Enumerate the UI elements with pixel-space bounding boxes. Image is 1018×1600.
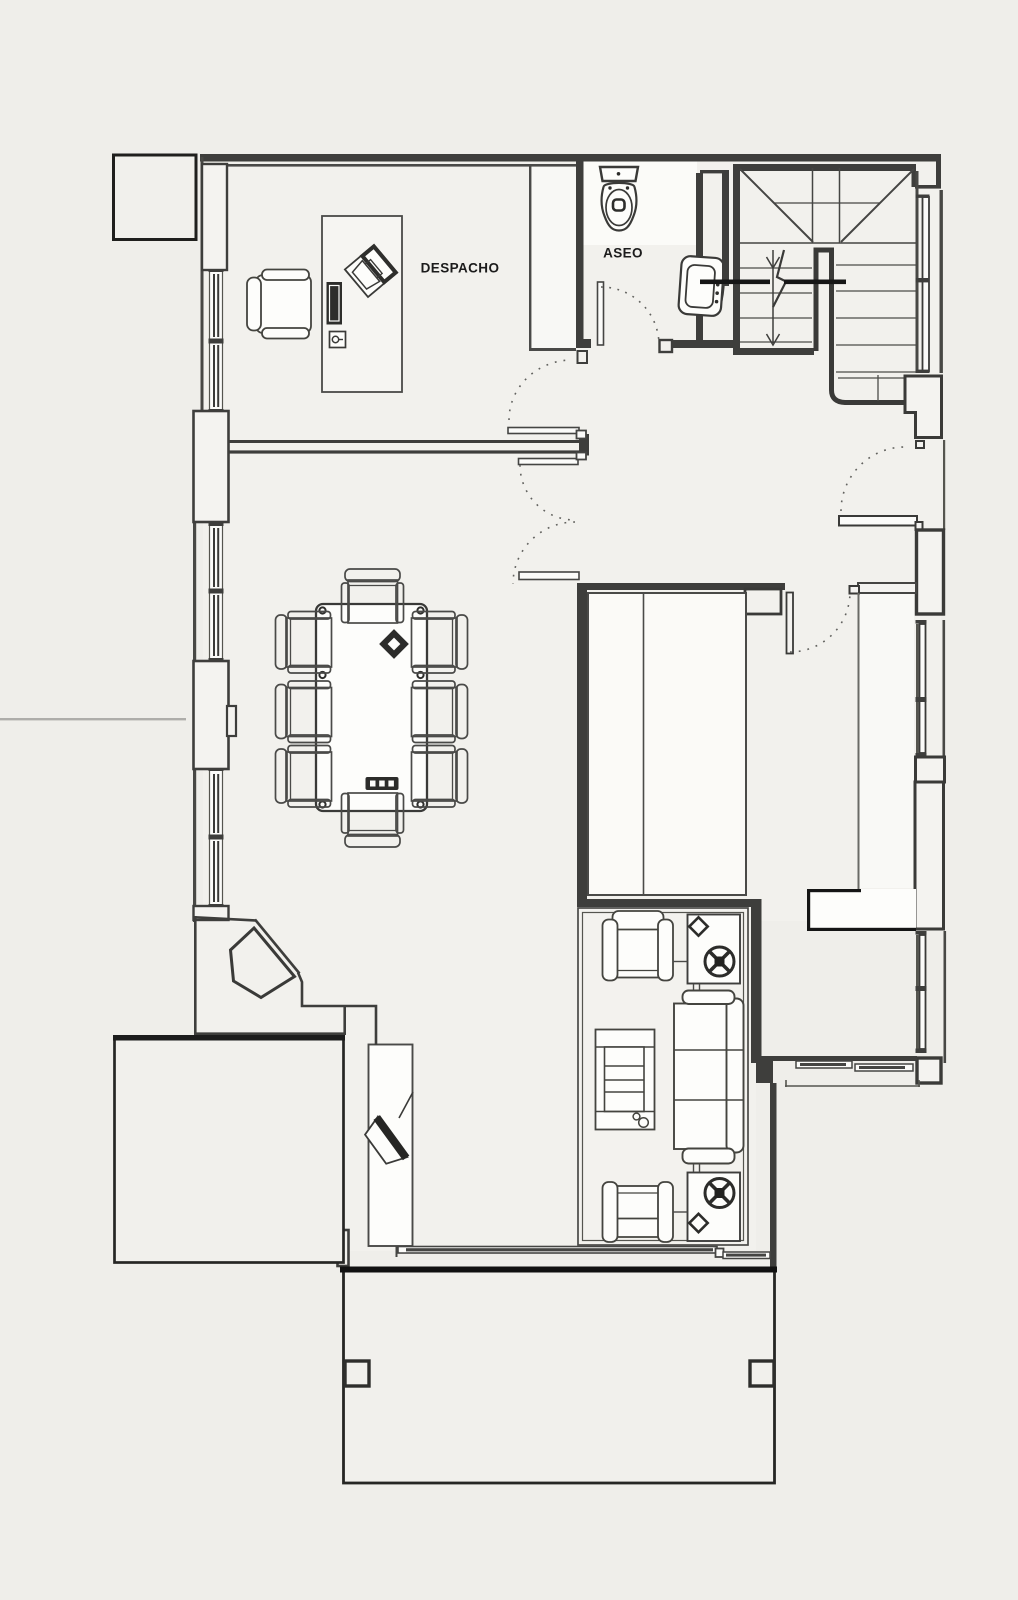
svg-text:DESPACHO: DESPACHO — [421, 261, 500, 276]
svg-text:ASEO: ASEO — [603, 246, 643, 261]
